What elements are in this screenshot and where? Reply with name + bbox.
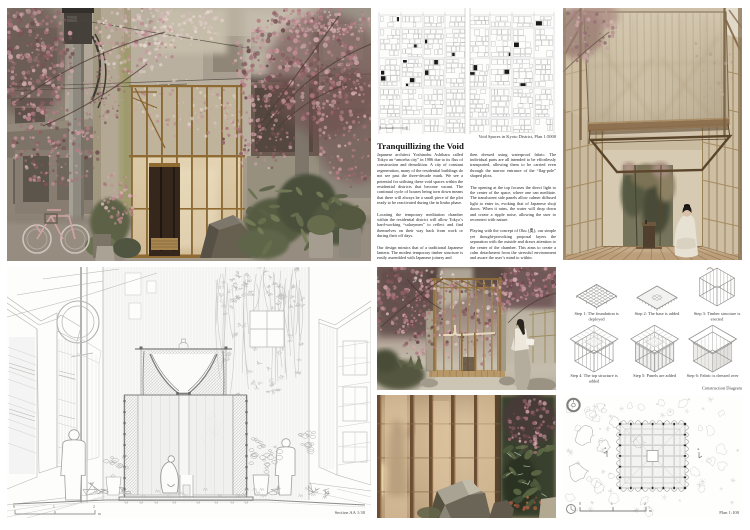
svg-text:2: 2	[93, 505, 95, 509]
svg-text:m: m	[98, 512, 101, 516]
svg-text:Step 5: Panels are added: Step 5: Panels are added	[633, 373, 677, 378]
svg-text:0: 0	[13, 505, 15, 509]
svg-text:Step 2: The base is added: Step 2: The base is added	[635, 311, 680, 316]
svg-text:Step 1: The foundation is: Step 1: The foundation is	[574, 311, 619, 316]
svg-text:Construction Diagram: Construction Diagram	[702, 386, 742, 391]
svg-text:Step 3: Timber structure is: Step 3: Timber structure is	[694, 311, 741, 316]
svg-text:deployed: deployed	[589, 317, 606, 322]
svg-text:Step 6: Fabric is dressed over: Step 6: Fabric is dressed over	[687, 373, 739, 378]
svg-text:2: 2	[644, 502, 646, 506]
svg-text:erected: erected	[711, 317, 724, 322]
svg-text:Plan 1:100: Plan 1:100	[719, 510, 739, 515]
svg-text:Section AA 1:30: Section AA 1:30	[335, 510, 366, 515]
svg-text:added: added	[589, 379, 600, 384]
svg-text:Step 4: The top structure is: Step 4: The top structure is	[570, 373, 618, 378]
svg-text:1: 1	[611, 502, 613, 506]
svg-text:1: 1	[53, 505, 55, 509]
svg-text:0: 0	[579, 502, 581, 506]
svg-text:m: m	[649, 509, 652, 513]
